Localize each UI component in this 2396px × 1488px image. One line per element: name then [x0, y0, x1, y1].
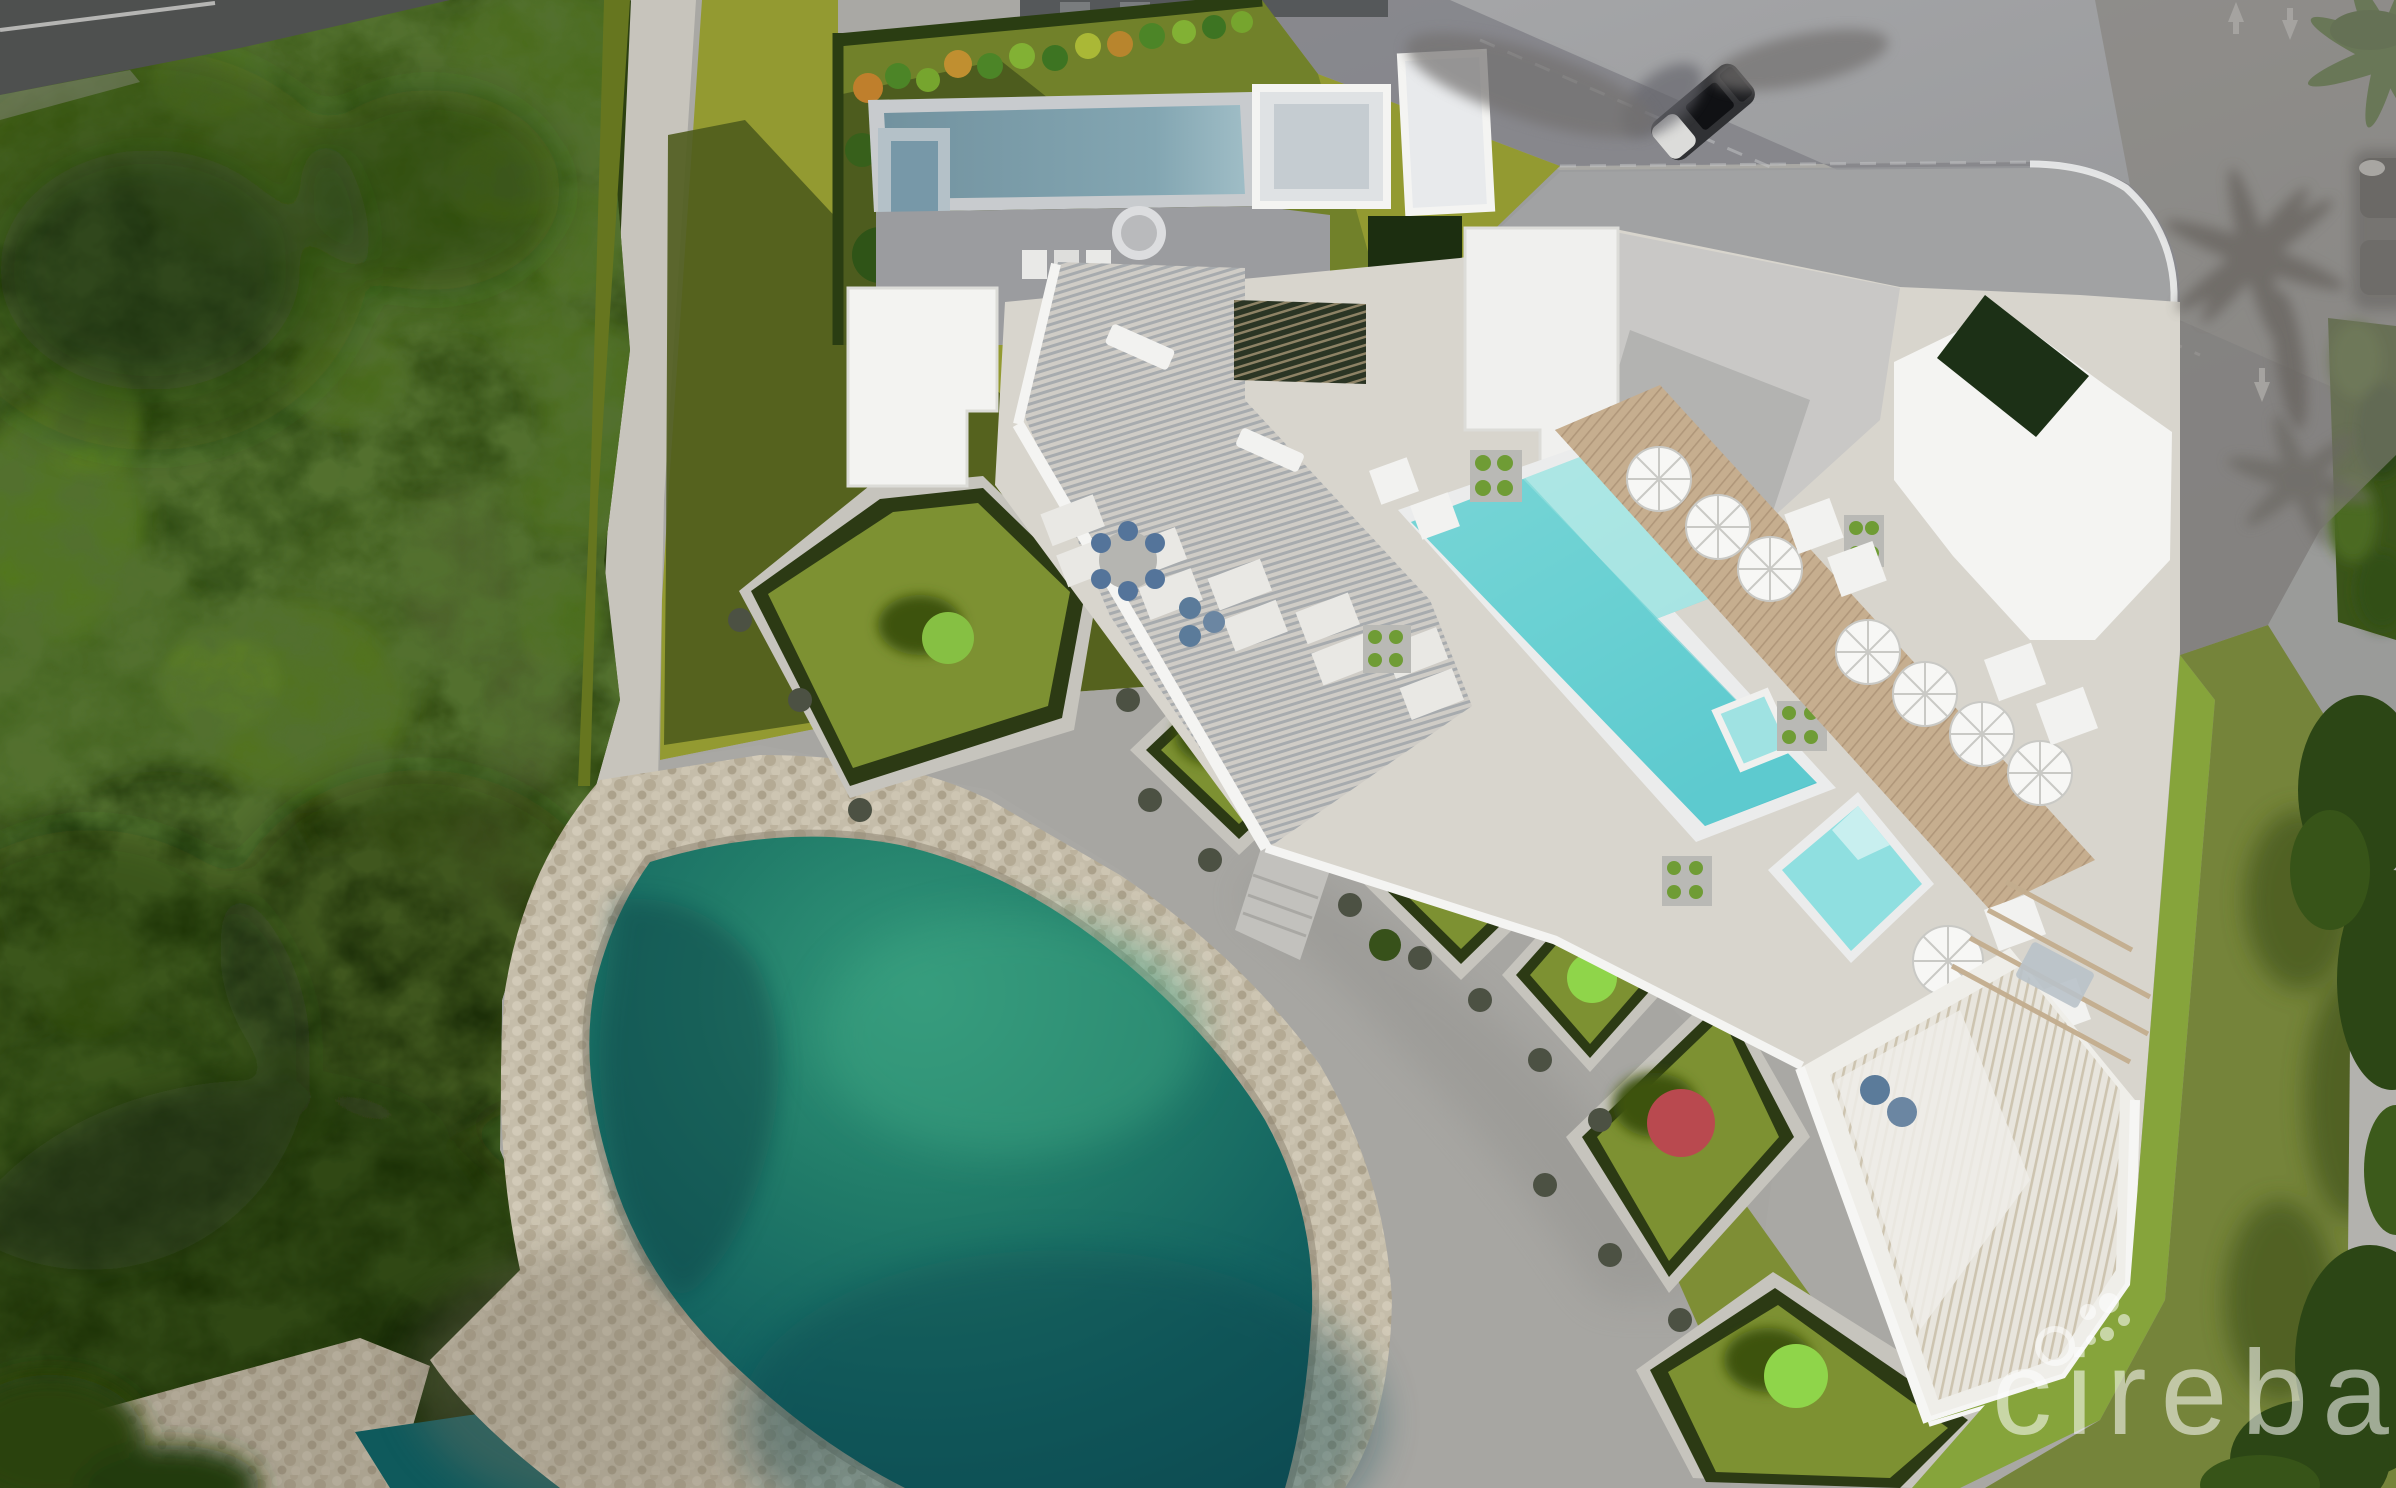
- svg-text:cireba: cireba: [1992, 1326, 2396, 1460]
